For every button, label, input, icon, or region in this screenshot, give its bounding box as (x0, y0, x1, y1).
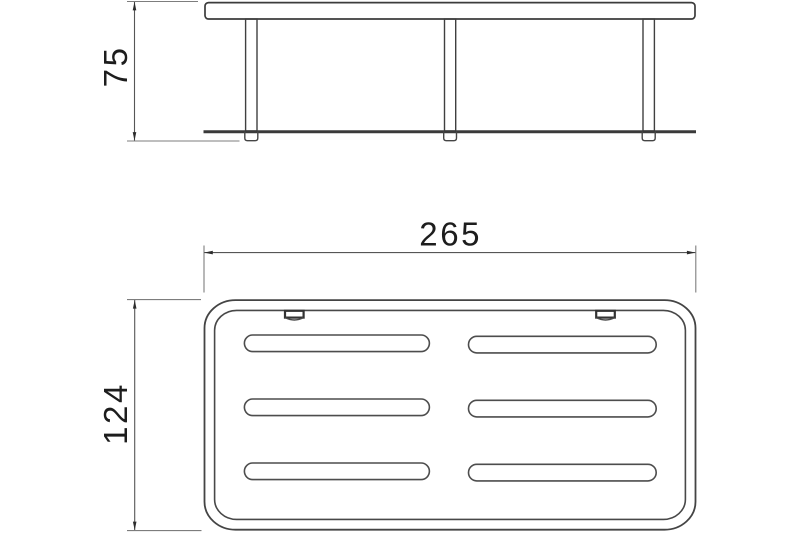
svg-text:265: 265 (419, 215, 482, 252)
svg-text:124: 124 (97, 382, 134, 445)
svg-text:75: 75 (97, 45, 134, 87)
